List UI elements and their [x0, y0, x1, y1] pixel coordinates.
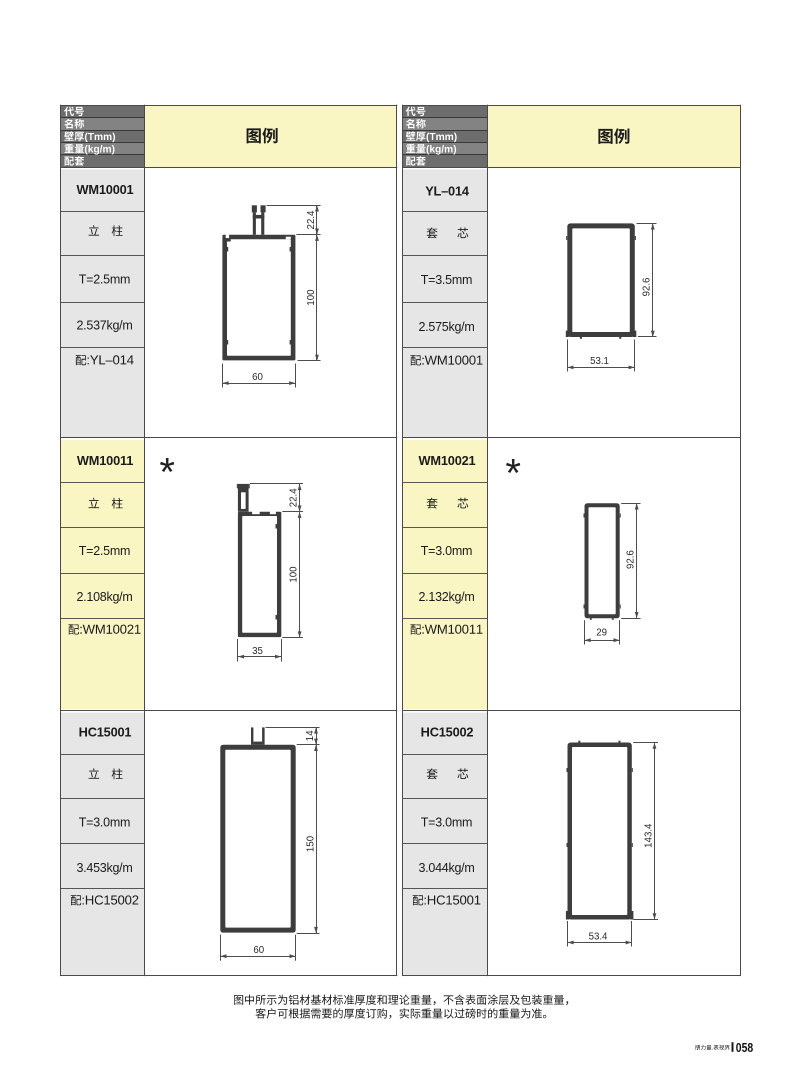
svg-text:60: 60 — [253, 945, 264, 956]
svg-text:3.453kg/m: 3.453kg/m — [76, 861, 132, 875]
svg-text:WM10001: WM10001 — [77, 182, 134, 197]
svg-text:150: 150 — [305, 835, 316, 852]
svg-text:22.4: 22.4 — [289, 488, 300, 507]
svg-text:143.4: 143.4 — [644, 823, 655, 848]
svg-text:T=3.5mm: T=3.5mm — [421, 273, 472, 287]
svg-text:53.1: 53.1 — [590, 356, 609, 367]
svg-text:HC15002: HC15002 — [421, 725, 474, 740]
svg-text:2.108kg/m: 2.108kg/m — [76, 590, 132, 604]
svg-text:*: * — [505, 452, 521, 496]
svg-text:53.4: 53.4 — [589, 931, 608, 942]
svg-text:3.044kg/m: 3.044kg/m — [418, 861, 474, 875]
svg-text:22.4: 22.4 — [306, 210, 317, 229]
svg-text:WM10021: WM10021 — [419, 453, 476, 468]
svg-text:T=2.5mm: T=2.5mm — [79, 273, 130, 287]
svg-text:2.132kg/m: 2.132kg/m — [418, 590, 474, 604]
svg-text:35: 35 — [252, 646, 263, 657]
svg-text:T=3.0mm: T=3.0mm — [79, 816, 130, 830]
svg-text:92.6: 92.6 — [642, 278, 653, 297]
svg-text:WM10011: WM10011 — [77, 453, 133, 468]
svg-text:T=2.5mm: T=2.5mm — [79, 544, 130, 558]
svg-text:14: 14 — [305, 730, 316, 741]
svg-text:*: * — [159, 451, 175, 495]
svg-text:T=3.0mm: T=3.0mm — [421, 816, 472, 830]
svg-text:60: 60 — [252, 372, 263, 383]
svg-text:HC15001: HC15001 — [79, 725, 132, 740]
svg-text:058: 058 — [736, 1040, 753, 1055]
svg-text:YL–014: YL–014 — [425, 184, 470, 199]
svg-text:T=3.0mm: T=3.0mm — [421, 544, 472, 558]
svg-text:92.6: 92.6 — [626, 550, 637, 569]
svg-text:100: 100 — [289, 566, 300, 583]
svg-text:100: 100 — [306, 289, 317, 306]
svg-text:2.537kg/m: 2.537kg/m — [76, 318, 132, 332]
svg-text:29: 29 — [596, 627, 607, 638]
svg-text:2.575kg/m: 2.575kg/m — [418, 320, 474, 334]
